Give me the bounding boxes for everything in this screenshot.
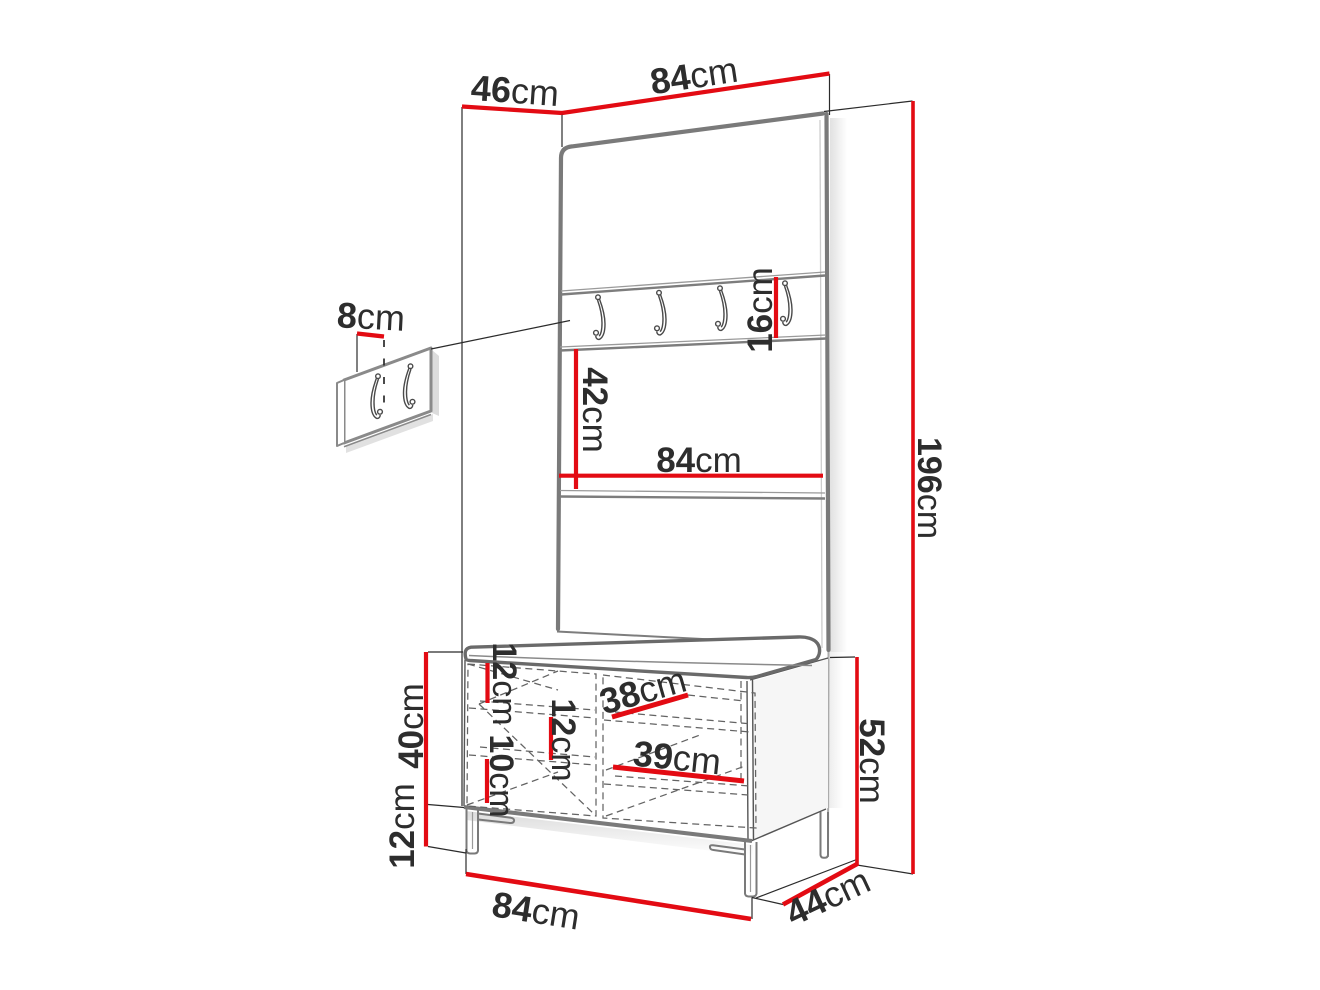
svg-text:42cm: 42cm	[575, 367, 614, 453]
svg-text:12cm: 12cm	[544, 698, 582, 781]
svg-text:196cm: 196cm	[910, 437, 948, 539]
svg-text:46cm: 46cm	[470, 67, 561, 114]
svg-text:10cm: 10cm	[482, 734, 520, 817]
svg-text:8cm: 8cm	[336, 294, 406, 339]
svg-text:12cm: 12cm	[383, 783, 422, 869]
svg-text:12cm: 12cm	[485, 642, 523, 725]
svg-text:52cm: 52cm	[852, 718, 891, 804]
svg-text:40cm: 40cm	[392, 683, 431, 769]
svg-text:84cm: 84cm	[656, 441, 742, 480]
svg-text:16cm: 16cm	[741, 267, 780, 353]
